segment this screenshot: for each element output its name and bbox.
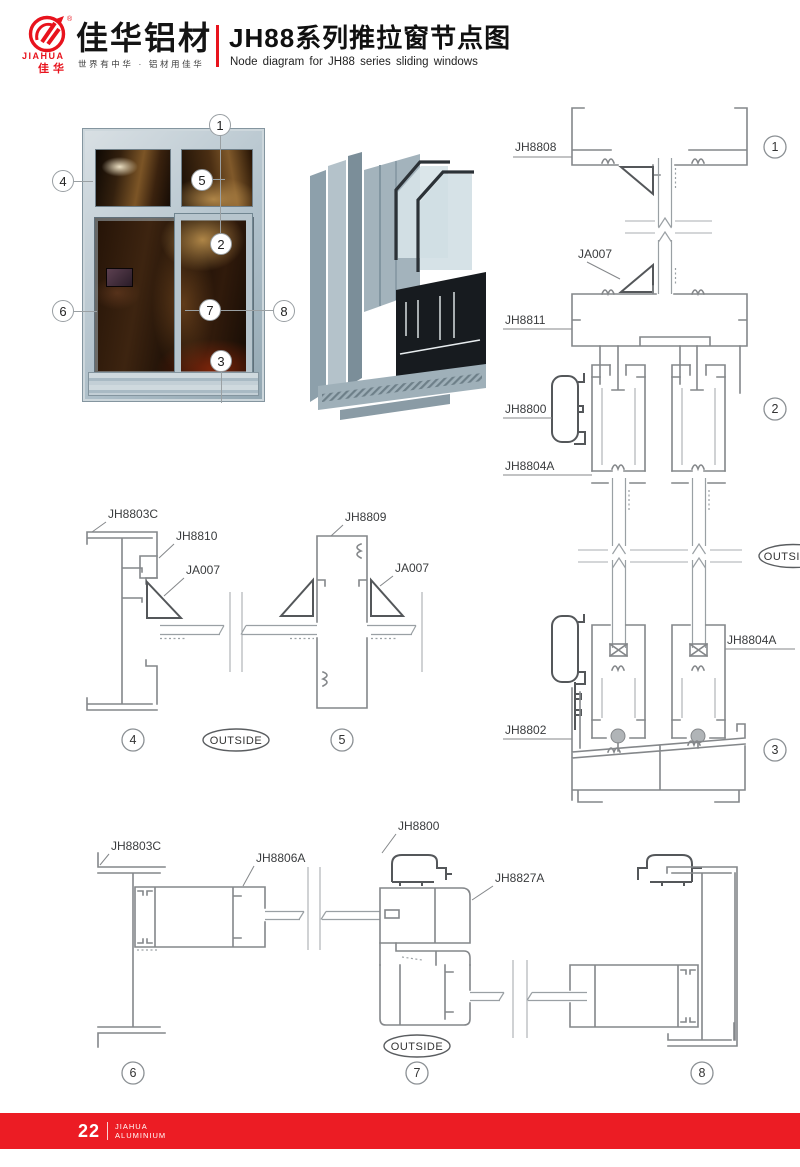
transom-glass-left: [95, 149, 171, 207]
outside-label-middle: OUTSIDE: [203, 729, 269, 751]
part-label-jh8806a: JH8806A: [256, 851, 305, 865]
part-label-jh8809: JH8809: [345, 510, 387, 524]
catalog-page: ® JIAHUA 佳华 佳华铝材 世界有中华 · 铝材用佳华 JH88系列推拉窗…: [0, 0, 800, 1167]
callout-7: 7: [199, 299, 221, 321]
callout-2: 2: [210, 233, 232, 255]
leader-line-5: [213, 179, 225, 180]
callout-4: 4: [52, 170, 74, 192]
part-label-ja007: JA007: [578, 247, 612, 261]
detail-number-3: 3: [764, 739, 786, 761]
leader-line-1: [220, 136, 221, 233]
leader-line-6: [74, 311, 97, 312]
part-label-jh8804a-top: JH8804A: [505, 459, 554, 473]
part-label-jh8808: JH8808: [515, 140, 557, 154]
svg-text:OUTSIDE: OUTSIDE: [391, 1041, 443, 1053]
callout-3: 3: [210, 350, 232, 372]
detail-number-7: 7: [406, 1062, 428, 1084]
footer-brand-line1: JIAHUA: [115, 1122, 166, 1131]
diagram-vertical-section: JH8808 JA007 JH8811 JH8800 JH8804A JH880…: [490, 88, 800, 810]
callout-1: 1: [209, 114, 231, 136]
brand-slogan: 世界有中华 · 铝材用佳华: [78, 58, 204, 70]
outside-label-bottom: OUTSIDE: [384, 1035, 450, 1057]
part-label-jh8827a: JH8827A: [495, 871, 544, 885]
svg-text:5: 5: [339, 733, 346, 747]
part-label-ja007-left: JA007: [186, 563, 220, 577]
svg-text:8: 8: [699, 1066, 706, 1080]
svg-text:6: 6: [130, 1066, 137, 1080]
jiahua-logo-icon: ®: [26, 13, 72, 55]
detail-number-5: 5: [331, 729, 353, 751]
part-label-jh8802: JH8802: [505, 723, 547, 737]
svg-text:OUTSIDE: OUTSIDE: [210, 735, 262, 747]
footer-divider: [107, 1122, 108, 1140]
interior-tv: [106, 268, 133, 287]
leader-line-3: [221, 372, 222, 403]
part-label-jh8803c-mid: JH8803C: [108, 507, 158, 521]
callout-6: 6: [52, 300, 74, 322]
callout-5: 5: [191, 169, 213, 191]
part-label-jh8811: JH8811: [505, 313, 546, 327]
registered-mark: ®: [67, 15, 72, 23]
detail-number-2: 2: [764, 398, 786, 420]
detail-number-8: 8: [691, 1062, 713, 1084]
part-label-jh8810: JH8810: [176, 529, 218, 543]
profile-3d-render: [300, 140, 500, 420]
part-label-jh8800-bottom: JH8800: [398, 819, 440, 833]
part-label-jh8800-right: JH8800: [505, 402, 547, 416]
footer-bar: 22 JIAHUA ALUMINIUM: [0, 1113, 800, 1149]
detail-number-4: 4: [122, 729, 144, 751]
footer-brand-line2: ALUMINIUM: [115, 1131, 166, 1140]
outside-label-right: OUTSIDE: [759, 545, 800, 568]
diagram-horizontal-section-bottom: JH8803C JH8806A JH8800 JH8827A 6 OUTSIDE…: [80, 810, 780, 1090]
callout-8: 8: [273, 300, 295, 322]
diagram-horizontal-section-top: JH8803C JH8810 JA007 JH8809 JA007 4 OUTS…: [60, 480, 480, 770]
leader-line-4: [74, 181, 93, 182]
svg-text:OUTSIDE: OUTSIDE: [764, 551, 800, 563]
svg-text:4: 4: [130, 733, 137, 747]
logo-brand-cn: 佳华: [38, 60, 68, 76]
detail-number-1: 1: [764, 136, 786, 158]
header-divider: [216, 25, 219, 67]
page-number: 22: [78, 1121, 100, 1142]
brand-name: 佳华铝材: [76, 22, 212, 54]
page-subtitle: Node diagram for JH88 series sliding win…: [230, 56, 478, 68]
bottom-rail: [88, 372, 259, 396]
part-label-ja007-right: JA007: [395, 561, 429, 575]
part-label-jh8803c-bottom: JH8803C: [111, 839, 161, 853]
svg-text:3: 3: [772, 743, 779, 757]
footer-brand: JIAHUA ALUMINIUM: [115, 1122, 166, 1141]
page-title: JH88系列推拉窗节点图: [229, 25, 511, 51]
detail-number-6: 6: [122, 1062, 144, 1084]
part-label-jh8804a-bottom: JH8804A: [727, 633, 776, 647]
svg-text:2: 2: [772, 402, 779, 416]
svg-text:1: 1: [772, 140, 779, 154]
svg-text:7: 7: [414, 1066, 421, 1080]
